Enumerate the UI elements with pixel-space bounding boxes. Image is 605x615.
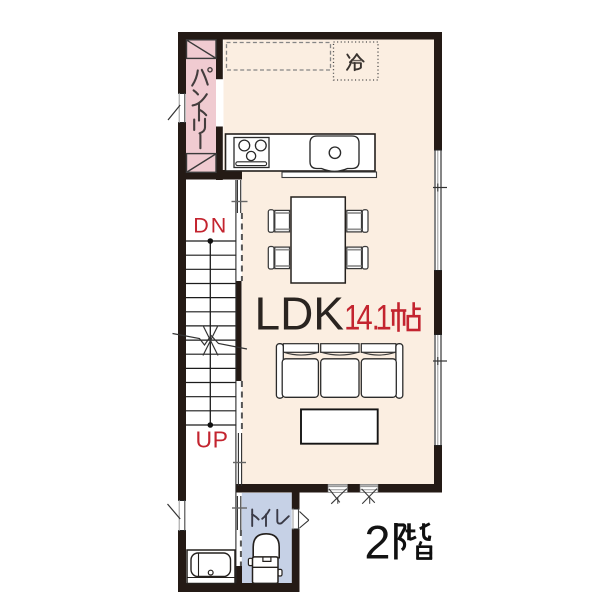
svg-text:4: 4 (357, 298, 373, 337)
svg-text:2: 2 (364, 516, 390, 569)
svg-text:DN: DN (193, 214, 228, 238)
svg-text:LDK: LDK (255, 288, 345, 340)
svg-text:UP: UP (196, 427, 229, 453)
svg-text:1: 1 (376, 298, 392, 337)
